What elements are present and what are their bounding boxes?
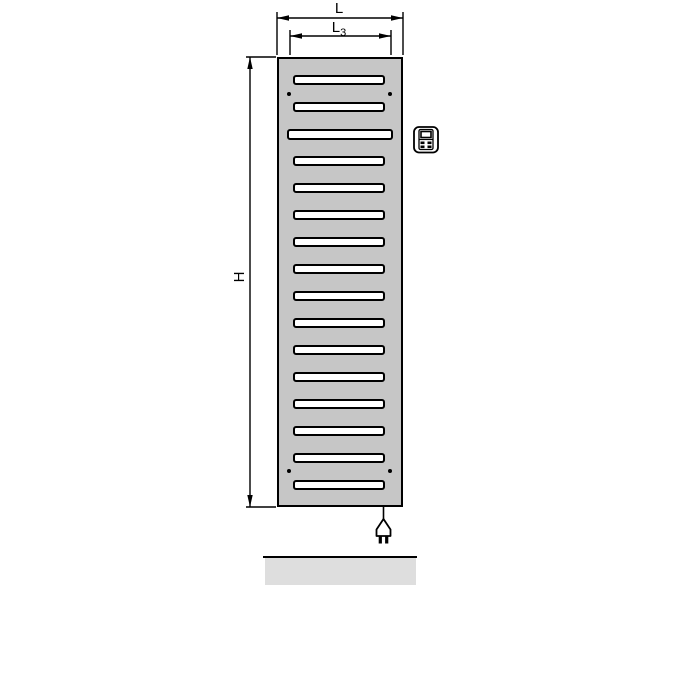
radiator-slot [293,75,385,85]
radiator-slot [293,237,385,247]
arrowhead-top [247,57,252,69]
radiator-slot [293,399,385,409]
radiator-slot [293,102,385,112]
radiator-panel [277,57,403,507]
mounting-dot [388,92,392,96]
mounting-dot [287,469,291,473]
dimension-label-l: L [329,1,349,16]
radiator-slot [293,453,385,463]
floor-slab [265,558,416,585]
control-unit-icon [412,125,440,155]
arrowhead-right [379,33,391,38]
subscript: 3 [340,27,346,39]
arrowhead-bottom [247,495,252,507]
power-plug-icon [370,505,398,547]
dimension-label-h: H [232,265,248,289]
radiator-slot [293,264,385,274]
radiator-slot [293,210,385,220]
dimension-label-l3: L3 [325,20,353,35]
radiator-slot [293,426,385,436]
radiator-wide-slot [287,129,393,140]
plug-prong [385,536,388,544]
radiator-slot [293,183,385,193]
plug-body [377,519,391,536]
plug-prong [379,536,382,544]
radiator-slot [293,156,385,166]
radiator-dimension-diagram: L L3 H [0,0,700,700]
radiator-slot [293,480,385,490]
arrowhead-left [277,15,289,20]
mounting-dot [287,92,291,96]
dimension-h [246,57,276,507]
radiator-slot [293,345,385,355]
arrowhead-right [391,15,403,20]
radiator-slot [293,291,385,301]
radiator-slot [293,318,385,328]
mounting-dot [388,469,392,473]
arrowhead-left [290,33,302,38]
radiator-slot [293,372,385,382]
